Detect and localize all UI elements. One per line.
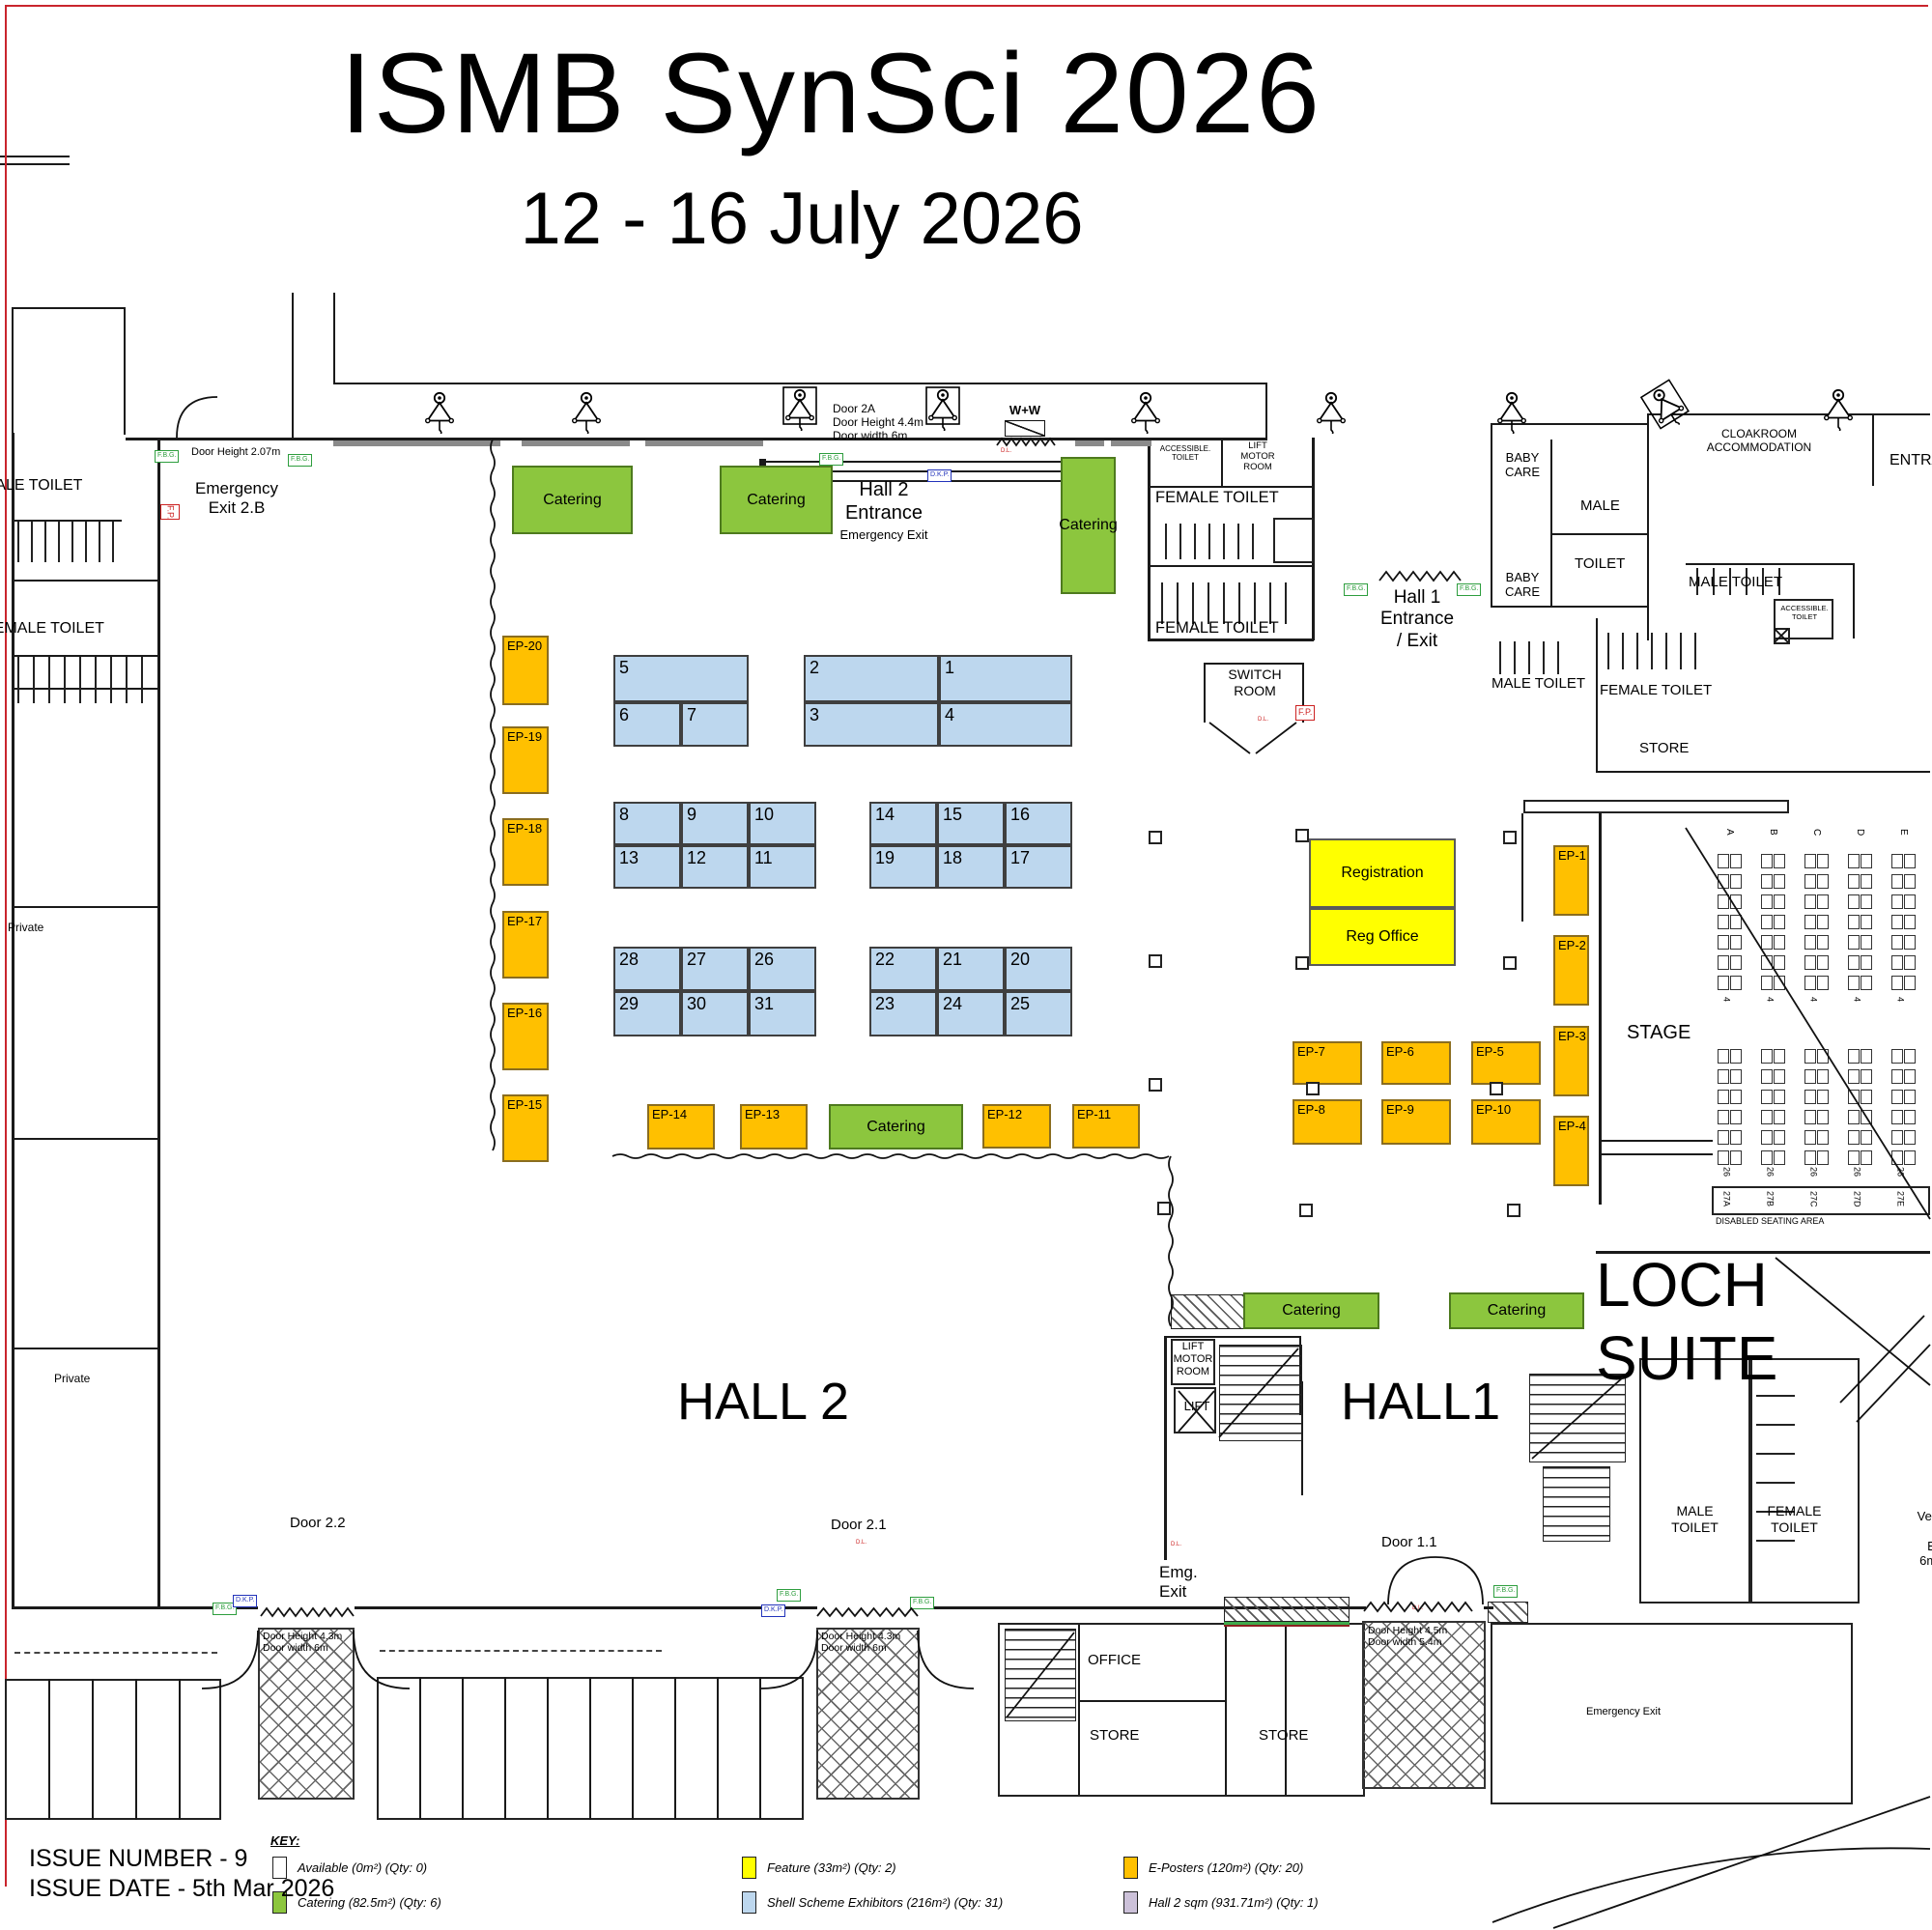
key-swatch-6 bbox=[1123, 1891, 1138, 1914]
fbg-tag: F.B.G. bbox=[819, 453, 843, 466]
wall-segment bbox=[1596, 771, 1930, 773]
red-strip bbox=[1224, 1625, 1350, 1627]
eposter-booth-ep-12[interactable]: EP-12 bbox=[982, 1104, 1051, 1149]
seat bbox=[1848, 1130, 1860, 1145]
shell-booth-3[interactable]: 3 bbox=[804, 702, 939, 747]
seat bbox=[1730, 1069, 1742, 1084]
wall-segment bbox=[1265, 383, 1267, 440]
toilet-stall-tick bbox=[1680, 633, 1682, 669]
seat bbox=[1761, 1090, 1773, 1104]
seat bbox=[1891, 955, 1903, 970]
seat bbox=[1891, 854, 1903, 868]
seat bbox=[1904, 894, 1916, 909]
pillar bbox=[1503, 831, 1517, 844]
seat bbox=[1804, 1090, 1816, 1104]
fire-alarm-icon bbox=[422, 389, 457, 434]
shell-booth-8[interactable]: 8 bbox=[613, 802, 681, 845]
toilet-stall-tick bbox=[64, 657, 66, 703]
shell-booth-19[interactable]: 19 bbox=[869, 845, 937, 889]
plan-label-39: MALE TOILET bbox=[1654, 1503, 1736, 1535]
seat bbox=[1761, 1069, 1773, 1084]
dashed-line bbox=[380, 1650, 662, 1652]
toilet-stall-tick bbox=[1636, 633, 1638, 669]
pillar bbox=[1503, 956, 1517, 970]
seat bbox=[1804, 976, 1816, 990]
bay-divider bbox=[179, 1679, 181, 1820]
door-lintel bbox=[522, 440, 630, 446]
seat-row-tag: 26 bbox=[1852, 1167, 1862, 1177]
plan-label-35: OFFICE bbox=[1088, 1652, 1141, 1669]
toilet-stall-tick bbox=[1207, 582, 1209, 624]
toilet-stall-tick bbox=[1192, 582, 1194, 624]
catering-area-4[interactable]: Catering bbox=[829, 1104, 963, 1149]
door-leaf-tag: D.L. bbox=[1001, 448, 1011, 454]
toilet-stall-tick bbox=[1238, 582, 1240, 624]
plan-label-45: DISABLED SEATING AREA bbox=[1716, 1216, 1824, 1227]
plan-label-40: FEMALE TOILET bbox=[1753, 1503, 1835, 1535]
seat-row-tag: 26 bbox=[1765, 1167, 1776, 1177]
fire-alarm-icon bbox=[1821, 386, 1856, 431]
pillar bbox=[1149, 831, 1162, 844]
seat bbox=[1817, 874, 1829, 889]
fp-tag: F.P. bbox=[160, 504, 180, 520]
seat bbox=[1891, 1090, 1903, 1104]
fbg-tag: F.B.G. bbox=[777, 1589, 801, 1602]
toilet-stall-tick bbox=[17, 657, 19, 703]
bay-divider bbox=[92, 1679, 94, 1820]
seat bbox=[1817, 1090, 1829, 1104]
plan-label-1: FEMALE TOILET bbox=[0, 620, 104, 639]
fp-tag: F.P. bbox=[1295, 705, 1315, 721]
shell-booth-23[interactable]: 23 bbox=[869, 991, 937, 1036]
eposter-booth-ep-9[interactable]: EP-9 bbox=[1381, 1099, 1451, 1145]
eposter-booth-ep-5[interactable]: EP-5 bbox=[1471, 1041, 1541, 1085]
plan-label-37: STORE bbox=[1259, 1727, 1308, 1745]
toilet-stall-tick bbox=[1622, 633, 1624, 669]
bay-divider bbox=[48, 1679, 50, 1820]
seat bbox=[1730, 1150, 1742, 1165]
toilet-stall-tick bbox=[1694, 633, 1696, 669]
wall-segment bbox=[1148, 438, 1151, 640]
plan-label-15: Hall 1 Entrance / Exit bbox=[1360, 587, 1474, 652]
seat bbox=[1861, 935, 1872, 950]
eposter-booth-ep-1[interactable]: EP-1 bbox=[1553, 845, 1589, 916]
shell-booth-2[interactable]: 2 bbox=[804, 655, 939, 702]
seat bbox=[1774, 935, 1785, 950]
wall-segment bbox=[355, 1606, 817, 1609]
hatched-strip bbox=[1224, 1597, 1350, 1622]
seat bbox=[1730, 955, 1742, 970]
floor-plan-page: ISMB SynSci 2026 12 - 16 July 2026 56721… bbox=[0, 0, 1932, 1930]
seat bbox=[1891, 1150, 1903, 1165]
plan-label-46: LIFT MOTOR ROOM bbox=[1168, 1341, 1218, 1378]
seat bbox=[1718, 915, 1729, 929]
seat bbox=[1804, 854, 1816, 868]
seat bbox=[1904, 874, 1916, 889]
seat bbox=[1817, 1069, 1829, 1084]
bay-divider bbox=[759, 1677, 761, 1820]
catering-area-3[interactable]: Catering bbox=[1061, 457, 1116, 594]
wall-segment bbox=[1204, 663, 1206, 723]
door-lintel bbox=[1075, 440, 1104, 446]
plan-label-27: STAGE bbox=[1627, 1022, 1690, 1045]
toilet-stall-tick bbox=[1165, 524, 1167, 559]
fbg-tag: F.B.G. bbox=[1457, 583, 1481, 596]
toilet-stall-tick bbox=[48, 657, 50, 703]
seat bbox=[1718, 1150, 1729, 1165]
pillar bbox=[1149, 1078, 1162, 1092]
shell-booth-6[interactable]: 6 bbox=[613, 702, 681, 747]
seat bbox=[1774, 874, 1785, 889]
wall-segment bbox=[1148, 639, 1314, 641]
seat bbox=[1761, 1110, 1773, 1124]
shell-booth-1[interactable]: 1 bbox=[939, 655, 1072, 702]
toilet-stall-tick bbox=[1514, 641, 1516, 674]
wall-segment bbox=[1686, 563, 1855, 565]
shell-booth-31[interactable]: 31 bbox=[749, 991, 816, 1036]
toilet-stall-tick bbox=[44, 522, 46, 562]
toilet-stall-tick bbox=[1161, 582, 1163, 624]
seat bbox=[1904, 1130, 1916, 1145]
plan-label-30: LOCH SUITE bbox=[1596, 1249, 1932, 1395]
seat bbox=[1817, 976, 1829, 990]
seat bbox=[1774, 1069, 1785, 1084]
shell-booth-11[interactable]: 11 bbox=[749, 845, 816, 889]
shell-booth-29[interactable]: 29 bbox=[613, 991, 681, 1036]
toilet-stall-tick bbox=[1252, 524, 1254, 559]
wall-segment bbox=[292, 383, 294, 440]
eposter-booth-ep-19[interactable]: EP-19 bbox=[502, 726, 549, 794]
toilet-stall-tick bbox=[1269, 582, 1271, 624]
door-leaf-tag: D.L. bbox=[1412, 1605, 1423, 1611]
wall-segment bbox=[1164, 1336, 1167, 1560]
wall-segment bbox=[12, 906, 158, 908]
seat bbox=[1718, 874, 1729, 889]
key-label-4: Shell Scheme Exhibitors (216m²) (Qty: 31… bbox=[767, 1895, 1003, 1910]
seat bbox=[1861, 915, 1872, 929]
wall-segment bbox=[1491, 423, 1492, 607]
plan-label-42: Door Height 4.3m Door width 6m bbox=[263, 1631, 342, 1655]
seat bbox=[1761, 854, 1773, 868]
bay-divider bbox=[462, 1677, 464, 1820]
wall-segment bbox=[12, 580, 158, 582]
plan-label-19: TOILET bbox=[1575, 555, 1625, 573]
eposter-booth-ep-18[interactable]: EP-18 bbox=[502, 818, 549, 886]
key-label-5: E-Posters (120m²) (Qty: 20) bbox=[1149, 1860, 1303, 1875]
drawing-frame-line bbox=[6, 5, 1928, 7]
seat bbox=[1761, 935, 1773, 950]
wall-segment bbox=[292, 293, 294, 383]
catering-area-2[interactable]: Catering bbox=[720, 466, 833, 534]
dkp-tag: D.K.P. bbox=[761, 1604, 785, 1617]
shell-booth-17[interactable]: 17 bbox=[1005, 845, 1072, 889]
seat bbox=[1861, 854, 1872, 868]
seat bbox=[1817, 915, 1829, 929]
seat bbox=[1904, 1069, 1916, 1084]
seat bbox=[1718, 955, 1729, 970]
plan-label-22: MALE TOILET bbox=[1689, 574, 1782, 591]
eposter-booth-ep-15[interactable]: EP-15 bbox=[502, 1094, 549, 1162]
plan-label-12: FEMALE TOILET bbox=[1155, 489, 1279, 507]
eposter-booth-ep-17[interactable]: EP-17 bbox=[502, 911, 549, 979]
seat bbox=[1891, 874, 1903, 889]
wall-segment bbox=[333, 383, 1267, 384]
dkp-tag: D.K.P. bbox=[927, 469, 952, 482]
shell-booth-21[interactable]: 21 bbox=[937, 947, 1005, 991]
disabled-seating-box bbox=[1712, 1186, 1930, 1215]
bay-divider bbox=[135, 1679, 137, 1820]
wall-segment bbox=[12, 433, 14, 1608]
seat bbox=[1761, 1150, 1773, 1165]
eposter-booth-ep-2[interactable]: EP-2 bbox=[1553, 935, 1589, 1006]
toilet-stall-tick bbox=[141, 657, 143, 703]
eposter-booth-ep-8[interactable]: EP-8 bbox=[1293, 1099, 1362, 1145]
plan-label-18: MALE bbox=[1580, 497, 1620, 515]
wall-segment bbox=[1596, 618, 1598, 773]
door-lintel bbox=[645, 440, 763, 446]
staircase bbox=[1005, 1629, 1076, 1721]
seat bbox=[1848, 935, 1860, 950]
seat bbox=[1761, 1049, 1773, 1064]
plan-label-32: Door 2.1 bbox=[831, 1517, 887, 1534]
seat bbox=[1891, 935, 1903, 950]
feature-area-reg-office[interactable]: Reg Office bbox=[1309, 908, 1456, 966]
fbg-tag: F.B.G. bbox=[1493, 1585, 1518, 1598]
eposter-booth-ep-13[interactable]: EP-13 bbox=[740, 1104, 808, 1149]
room-outline bbox=[1774, 628, 1790, 644]
catering-area-6[interactable]: Catering bbox=[1449, 1292, 1584, 1329]
seat bbox=[1730, 1049, 1742, 1064]
shell-booth-14[interactable]: 14 bbox=[869, 802, 937, 845]
catering-area-5[interactable]: Catering bbox=[1243, 1292, 1379, 1329]
seat-row-tag: 4 bbox=[1852, 997, 1862, 1002]
seat bbox=[1848, 854, 1860, 868]
toilet-stall-tick bbox=[1528, 641, 1530, 674]
seat bbox=[1774, 1110, 1785, 1124]
seat bbox=[1730, 1090, 1742, 1104]
seat-row-tag: 26 bbox=[1808, 1167, 1819, 1177]
plan-label-44: Door Height 4.5m Door width 5.4m bbox=[1368, 1625, 1447, 1649]
shell-booth-26[interactable]: 26 bbox=[749, 947, 816, 991]
toilet-stall-tick bbox=[99, 522, 100, 562]
shell-booth-12[interactable]: 12 bbox=[681, 845, 749, 889]
toilet-stall-tick bbox=[85, 522, 87, 562]
seat bbox=[1774, 1090, 1785, 1104]
seat bbox=[1848, 1069, 1860, 1084]
wall-segment bbox=[0, 156, 70, 157]
shell-booth-20[interactable]: 20 bbox=[1005, 947, 1072, 991]
feature-area-registration[interactable]: Registration bbox=[1309, 838, 1456, 908]
toilet-stall-tick bbox=[79, 657, 81, 703]
seat bbox=[1848, 894, 1860, 909]
seat bbox=[1861, 1150, 1872, 1165]
seat bbox=[1761, 1130, 1773, 1145]
catering-area-1[interactable]: Catering bbox=[512, 466, 633, 534]
shell-booth-28[interactable]: 28 bbox=[613, 947, 681, 991]
plan-label-38: Emergency Exit bbox=[1544, 1706, 1703, 1718]
wall-segment bbox=[1853, 563, 1855, 639]
seat bbox=[1730, 874, 1742, 889]
seat-row-tag: 4 bbox=[1808, 997, 1819, 1002]
plan-label-31: Door 2.2 bbox=[290, 1515, 346, 1532]
shell-booth-22[interactable]: 22 bbox=[869, 947, 937, 991]
key-swatch-4 bbox=[742, 1891, 756, 1914]
bay-divider bbox=[632, 1677, 634, 1820]
seat bbox=[1774, 854, 1785, 868]
shell-booth-16[interactable]: 16 bbox=[1005, 802, 1072, 845]
eposter-booth-ep-10[interactable]: EP-10 bbox=[1471, 1099, 1541, 1145]
toilet-stall-tick bbox=[31, 522, 33, 562]
eposter-booth-ep-16[interactable]: EP-16 bbox=[502, 1003, 549, 1070]
seat bbox=[1817, 894, 1829, 909]
issue-date: ISSUE DATE - 5th Mar 2026 bbox=[29, 1875, 334, 1904]
eposter-booth-ep-3[interactable]: EP-3 bbox=[1553, 1026, 1589, 1096]
seat bbox=[1904, 976, 1916, 990]
eposter-booth-ep-4[interactable]: EP-4 bbox=[1553, 1116, 1589, 1186]
wall-segment bbox=[1148, 486, 1314, 488]
seat bbox=[1861, 1110, 1872, 1124]
shell-booth-4[interactable]: 4 bbox=[939, 702, 1072, 747]
fbg-tag: F.B.G. bbox=[155, 450, 179, 463]
seat bbox=[1730, 915, 1742, 929]
fire-alarm-icon bbox=[1128, 389, 1163, 434]
seat bbox=[1761, 894, 1773, 909]
seat bbox=[1861, 1049, 1872, 1064]
wall-segment bbox=[12, 1138, 158, 1140]
toilet-stall-tick bbox=[1756, 1453, 1795, 1455]
toilet-stall-tick bbox=[1543, 641, 1545, 674]
eposter-booth-ep-7[interactable]: EP-7 bbox=[1293, 1041, 1362, 1085]
bay-divider bbox=[717, 1677, 719, 1820]
bay-divider bbox=[547, 1677, 549, 1820]
seat bbox=[1861, 1130, 1872, 1145]
seat bbox=[1891, 976, 1903, 990]
fire-alarm-icon bbox=[1314, 389, 1349, 434]
toilet-stall-tick bbox=[17, 522, 19, 562]
eposter-booth-ep-6[interactable]: EP-6 bbox=[1381, 1041, 1451, 1085]
seat bbox=[1730, 854, 1742, 868]
room-outline bbox=[1523, 800, 1789, 813]
bay-divider bbox=[589, 1677, 591, 1820]
toilet-stall-tick bbox=[95, 657, 97, 703]
wall-segment bbox=[1148, 565, 1314, 567]
plan-label-14: SWITCH ROOM bbox=[1207, 667, 1302, 698]
seat-row-tag: 4 bbox=[1895, 997, 1906, 1002]
fire-alarm-icon bbox=[1494, 389, 1529, 434]
toilet-stall-tick bbox=[33, 657, 35, 703]
shell-booth-10[interactable]: 10 bbox=[749, 802, 816, 845]
eposter-booth-ep-14[interactable]: EP-14 bbox=[647, 1104, 715, 1149]
toilet-stall-tick bbox=[1756, 1395, 1795, 1397]
toilet-stall-tick bbox=[1208, 524, 1210, 559]
seat bbox=[1804, 915, 1816, 929]
wall-segment bbox=[12, 307, 14, 433]
toilet-stall-tick bbox=[1237, 524, 1239, 559]
eposter-booth-ep-11[interactable]: EP-11 bbox=[1072, 1104, 1140, 1149]
wall-segment bbox=[12, 307, 126, 309]
plan-label-0: MALE TOILET bbox=[0, 477, 82, 496]
drawing-frame-line bbox=[5, 5, 7, 1887]
plan-label-6: Door 2A Door Height 4.4m Door width 6m bbox=[833, 402, 923, 442]
room-outline bbox=[1273, 518, 1314, 563]
toilet-stall-tick bbox=[1756, 1424, 1795, 1426]
plan-label-4: Private bbox=[8, 921, 43, 934]
shell-booth-13[interactable]: 13 bbox=[613, 845, 681, 889]
issue-number: ISSUE NUMBER - 9 bbox=[29, 1845, 247, 1874]
shell-booth-7[interactable]: 7 bbox=[681, 702, 749, 747]
ww-symbol-box bbox=[1005, 420, 1045, 437]
seat bbox=[1817, 1150, 1829, 1165]
seat bbox=[1848, 1049, 1860, 1064]
seat bbox=[1774, 894, 1785, 909]
seat bbox=[1904, 1049, 1916, 1064]
toilet-stall-tick bbox=[1223, 524, 1225, 559]
shell-booth-5[interactable]: 5 bbox=[613, 655, 749, 702]
plan-label-23: ACCESSIBLE. TOILET bbox=[1775, 605, 1834, 622]
shell-booth-25[interactable]: 25 bbox=[1005, 991, 1072, 1036]
wall-segment bbox=[1599, 1153, 1713, 1155]
plan-label-3: Door Height 2.07m bbox=[191, 446, 280, 459]
seat bbox=[1804, 1130, 1816, 1145]
toilet-stall-tick bbox=[1499, 641, 1501, 674]
shell-booth-9[interactable]: 9 bbox=[681, 802, 749, 845]
seat bbox=[1718, 935, 1729, 950]
plan-label-11: LIFT MOTOR ROOM bbox=[1234, 440, 1282, 473]
fbg-tag: F.B.G. bbox=[1344, 583, 1368, 596]
plan-label-5: Private bbox=[54, 1372, 90, 1385]
shell-booth-30[interactable]: 30 bbox=[681, 991, 749, 1036]
seat bbox=[1718, 1110, 1729, 1124]
pillar bbox=[1149, 954, 1162, 968]
eposter-booth-ep-20[interactable]: EP-20 bbox=[502, 636, 549, 705]
seat bbox=[1761, 976, 1773, 990]
plan-label-43: Door Height 4.3m Door width 6m bbox=[821, 1631, 900, 1655]
seat bbox=[1730, 935, 1742, 950]
hatched-strip bbox=[1488, 1602, 1528, 1623]
plan-label-13: FEMALE TOILET bbox=[1155, 619, 1279, 638]
shell-booth-15[interactable]: 15 bbox=[937, 802, 1005, 845]
wall-segment bbox=[1491, 606, 1649, 608]
wall-segment bbox=[14, 655, 158, 657]
plan-label-36: STORE bbox=[1090, 1727, 1139, 1745]
toilet-stall-tick bbox=[1285, 582, 1287, 624]
key-swatch-3 bbox=[742, 1857, 756, 1879]
seat bbox=[1804, 1110, 1816, 1124]
shell-booth-18[interactable]: 18 bbox=[937, 845, 1005, 889]
seat bbox=[1774, 1150, 1785, 1165]
seat bbox=[1718, 1049, 1729, 1064]
staircase bbox=[1543, 1466, 1610, 1542]
page-title: ISMB SynSci 2026 bbox=[0, 27, 1662, 161]
seat bbox=[1817, 955, 1829, 970]
seat bbox=[1761, 955, 1773, 970]
seat bbox=[1761, 915, 1773, 929]
seat bbox=[1774, 976, 1785, 990]
seat bbox=[1848, 1150, 1860, 1165]
wall-segment bbox=[1164, 1336, 1301, 1338]
staircase bbox=[1219, 1345, 1302, 1441]
wall-segment bbox=[1521, 813, 1523, 922]
seat bbox=[1848, 1110, 1860, 1124]
seat-row-tag: 26 bbox=[1895, 1167, 1906, 1177]
seat-column-letter: A bbox=[1723, 829, 1735, 836]
toilet-stall-tick bbox=[1194, 524, 1196, 559]
seat bbox=[1891, 1110, 1903, 1124]
pillar bbox=[1157, 1202, 1171, 1215]
shell-booth-27[interactable]: 27 bbox=[681, 947, 749, 991]
pillar bbox=[1306, 1082, 1320, 1095]
shell-booth-24[interactable]: 24 bbox=[937, 991, 1005, 1036]
